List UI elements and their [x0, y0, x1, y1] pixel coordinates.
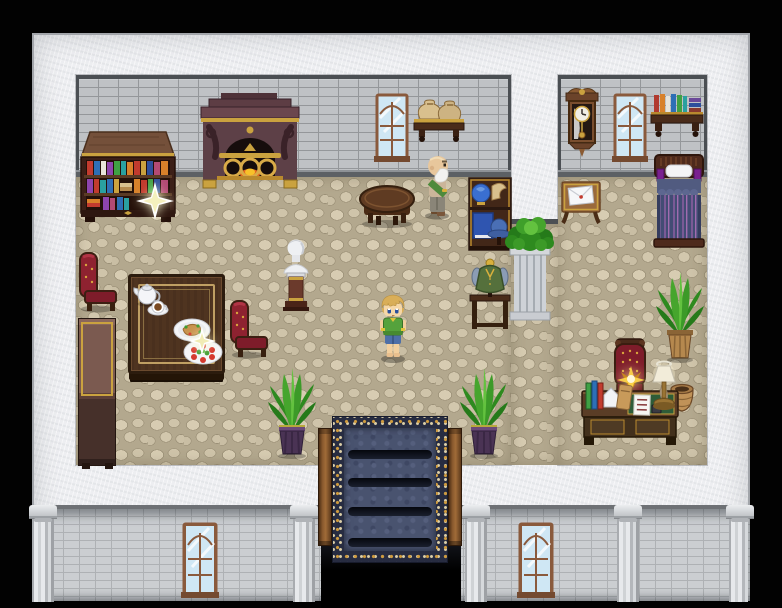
- book-row: [87, 161, 168, 175]
- stair-step: [348, 478, 432, 487]
- game-viewport[interactable]: [0, 0, 782, 608]
- facade-column: [465, 506, 487, 602]
- facade-window-right: [517, 521, 555, 599]
- facade-column: [729, 506, 748, 602]
- bookshelf-sparkle[interactable]: [134, 180, 176, 222]
- pillar-plant-foliage: [505, 217, 554, 251]
- stair-step: [348, 507, 432, 516]
- npc-elder[interactable]: [419, 153, 455, 221]
- hall-window: [374, 92, 410, 164]
- red-chair-left: [77, 251, 119, 313]
- fireplace: [195, 93, 305, 189]
- letter-table[interactable]: [560, 178, 602, 228]
- stair-rail-left: [318, 428, 332, 546]
- stair-runner-carpet[interactable]: [333, 417, 447, 562]
- sideboard: [78, 318, 116, 466]
- facade-column: [617, 506, 639, 602]
- grandfather-clock: [563, 87, 601, 159]
- shelf-books: [654, 94, 701, 112]
- pillar-plant: [504, 214, 556, 320]
- stair-step: [348, 450, 432, 459]
- bedroom-window: [612, 92, 648, 164]
- pillow: [666, 165, 692, 177]
- facade-column: [293, 506, 315, 602]
- money-bag-shelf: [412, 97, 466, 145]
- desk-books: [586, 381, 603, 409]
- satchel: [616, 384, 632, 410]
- stair-runner-field: [344, 428, 436, 551]
- desk-plant-leaves: [656, 272, 704, 336]
- tea-cup: [147, 298, 169, 316]
- desk-plant: [656, 270, 704, 372]
- globe: [472, 184, 490, 202]
- bed[interactable]: [653, 155, 705, 249]
- facade-column: [32, 506, 54, 602]
- envelope: [568, 186, 594, 205]
- red-chair-right: [228, 299, 270, 361]
- stair-step: [348, 538, 432, 547]
- marble-bust: [279, 237, 313, 313]
- round-table: [358, 183, 416, 229]
- stair-plant-left: [268, 366, 316, 464]
- facade-window-left: [181, 521, 219, 599]
- stair-plant-right: [460, 366, 508, 464]
- bedroom-book-shelf: [651, 92, 703, 138]
- table-sparkle[interactable]: [187, 326, 217, 356]
- player-character[interactable]: [376, 293, 410, 365]
